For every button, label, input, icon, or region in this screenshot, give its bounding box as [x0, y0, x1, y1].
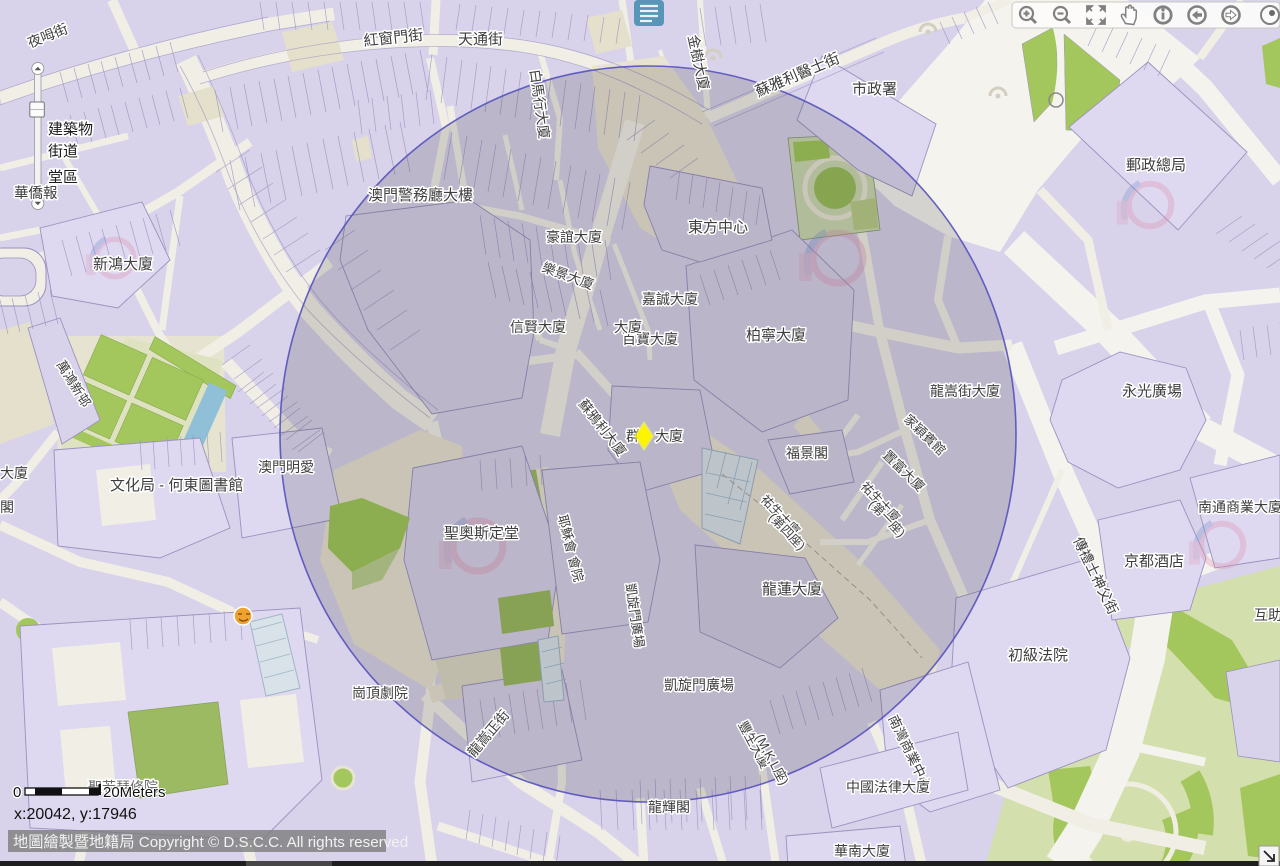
svg-text:0: 0 [13, 784, 21, 801]
svg-text:堂區: 堂區 [48, 169, 78, 186]
svg-text:中國法律大廈: 中國法律大廈 [846, 779, 930, 795]
svg-text:20Meters: 20Meters [103, 784, 166, 801]
svg-text:天通街: 天通街 [458, 31, 503, 48]
svg-text:初級法院: 初級法院 [1008, 646, 1068, 664]
svg-text:嘉誠大廈: 嘉誠大廈 [642, 291, 698, 307]
svg-text:大廈: 大廈 [0, 465, 28, 481]
svg-text:京都酒店: 京都酒店 [1124, 553, 1184, 570]
svg-text:龍輝閣: 龍輝閣 [648, 799, 690, 815]
svg-text:新鴻大廈: 新鴻大廈 [93, 255, 153, 273]
svg-text:華僑報: 華僑報 [14, 185, 58, 202]
svg-text:建築物: 建築物 [48, 120, 93, 138]
svg-text:大廈: 大廈 [655, 428, 683, 444]
svg-text:市政署: 市政署 [852, 81, 897, 98]
svg-text:信賢大廈: 信賢大廈 [510, 319, 566, 335]
svg-text:永光廣場: 永光廣場 [1122, 383, 1182, 400]
svg-text:郵政總局: 郵政總局 [1126, 156, 1186, 174]
svg-text:柏寧大廈: 柏寧大廈 [746, 326, 806, 344]
svg-text:地圖繪製暨地籍局 Copyright © D.S.C.C.: 地圖繪製暨地籍局 Copyright © D.S.C.C. All rights… [13, 833, 408, 851]
svg-text:互助: 互助 [1254, 607, 1280, 623]
svg-text:龍嵩街大廈: 龍嵩街大廈 [930, 383, 1000, 399]
svg-text:閣: 閣 [0, 499, 14, 515]
svg-text:澳門警務廳大樓: 澳門警務廳大樓 [368, 186, 473, 204]
svg-text:澳門明愛: 澳門明愛 [258, 459, 314, 475]
svg-text:x:20042, y:17946: x:20042, y:17946 [14, 806, 137, 823]
svg-text:福景閣: 福景閣 [786, 445, 828, 461]
svg-text:東方中心: 東方中心 [688, 219, 748, 236]
svg-text:龍蓮大廈: 龍蓮大廈 [762, 580, 822, 598]
svg-text:聖奧斯定堂: 聖奧斯定堂 [444, 525, 519, 542]
svg-text:華南大廈: 華南大廈 [834, 843, 890, 859]
svg-text:街道: 街道 [48, 143, 78, 160]
svg-text:南通商業大廈: 南通商業大廈 [1198, 499, 1280, 515]
svg-text:文化局 - 何東圖書館: 文化局 - 何東圖書館 [110, 477, 243, 494]
svg-text:崗頂劇院: 崗頂劇院 [352, 685, 408, 701]
svg-text:大廈: 大廈 [614, 319, 642, 335]
svg-text:凱旋門廣場: 凱旋門廣場 [664, 677, 734, 693]
svg-text:豪誼大廈: 豪誼大廈 [546, 229, 602, 245]
